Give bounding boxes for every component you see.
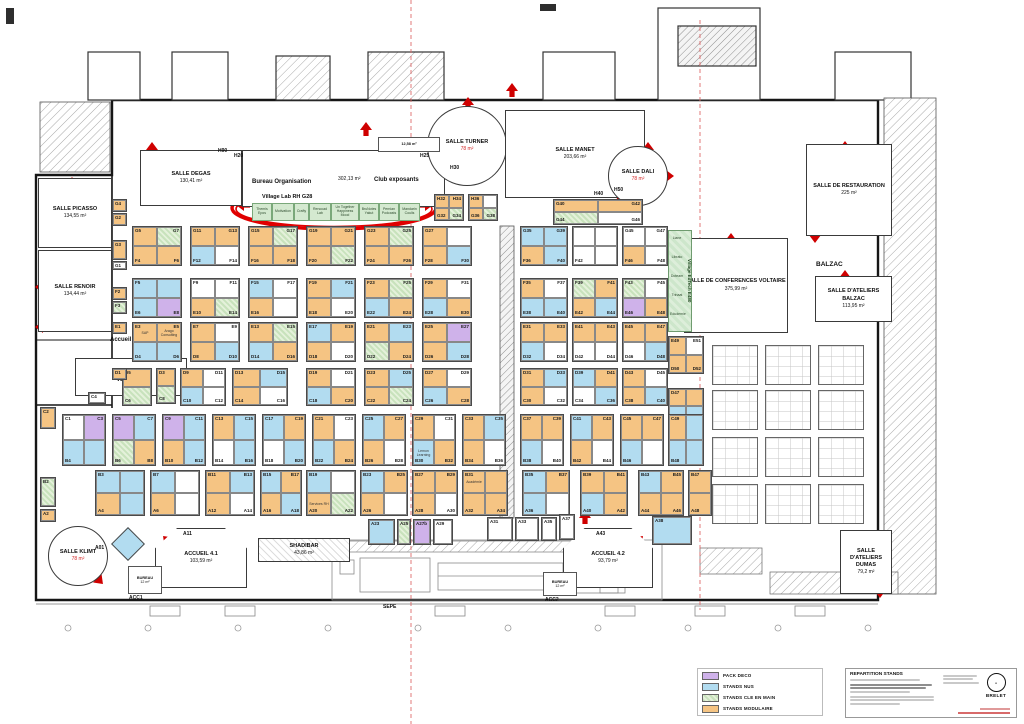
legend-item: STANDS NUS	[698, 681, 822, 692]
village-lab-stand: Renocad Lab	[309, 203, 331, 221]
label-accueil: Accueil	[110, 337, 131, 343]
title-block: REPARTITION STANDS ● BRELET	[845, 668, 1017, 718]
label-h40: H40	[594, 192, 603, 197]
village-lab-stand: Pernian Podcasts	[379, 203, 399, 221]
red-note-bar	[980, 708, 1010, 710]
legend-label: STANDS CLE EN MAIN	[723, 695, 775, 700]
label-302-13-m-: 302,13 m²	[338, 177, 361, 182]
brelet-logo-circle: ●	[987, 673, 1006, 692]
legend-item: PACK DECO	[698, 670, 822, 681]
red-note-bar	[958, 712, 1010, 714]
legend-swatch	[702, 694, 719, 702]
label-a01: A01	[95, 546, 104, 551]
legend-label: PACK DECO	[723, 673, 751, 678]
label-h25: H25	[420, 154, 429, 159]
brelet-logo-text: BRELET	[984, 693, 1008, 698]
village-lab-stand: Themis Epos	[252, 203, 272, 221]
label-a11: A11	[183, 532, 192, 537]
label-club-exposants: Club exposants	[374, 177, 419, 183]
village-lab-stand: Motivation	[272, 203, 294, 221]
label-balzac: BALZAC	[816, 262, 843, 269]
village-lab-stand: Mandarin Coulis	[399, 203, 420, 221]
registration-mark	[6, 8, 14, 24]
legend-item: STANDS MODULAIRE	[698, 703, 822, 714]
label-h20: H20	[234, 154, 243, 159]
village-lab-stand: Un Together Happiness Mood	[331, 203, 359, 221]
legend-swatch	[702, 705, 719, 713]
label-h50: H50	[614, 188, 623, 193]
legend-swatch	[702, 672, 719, 680]
label-a43: A43	[596, 532, 605, 537]
legend-label: STANDS NUS	[723, 684, 754, 689]
village-lab-rh-title: Village Lab RH G28	[262, 194, 312, 200]
registration-mark	[540, 4, 556, 11]
label-acc2: ACC2	[545, 598, 559, 603]
legend-label: STANDS MODULAIRE	[723, 706, 773, 711]
label-h90: H90	[218, 149, 227, 154]
legend: PACK DECOSTANDS NUSSTANDS CLE EN MAINSTA…	[697, 668, 823, 716]
label-h30: H30	[450, 166, 459, 171]
village-lab-stand: Crafty	[294, 203, 309, 221]
labels-layer: Village Lab RH G28Themis EposMotivationC…	[0, 0, 1024, 724]
label-acc1: ACC1	[129, 596, 143, 601]
legend-item: STANDS CLE EN MAIN	[698, 692, 822, 703]
label-bureau-organisation: Bureau Organisation	[252, 179, 311, 185]
brelet-logo: ● BRELET	[984, 673, 1008, 698]
drawing-title: REPARTITION STANDS	[850, 672, 938, 677]
label-sepe: SEPE	[383, 605, 396, 610]
floor-plan: SALLE PICASSO134,55 m²SALLE RENOIR134,44…	[0, 0, 1024, 724]
village-lab-stand: BruNotes Yakut	[359, 203, 379, 221]
legend-swatch	[702, 683, 719, 691]
